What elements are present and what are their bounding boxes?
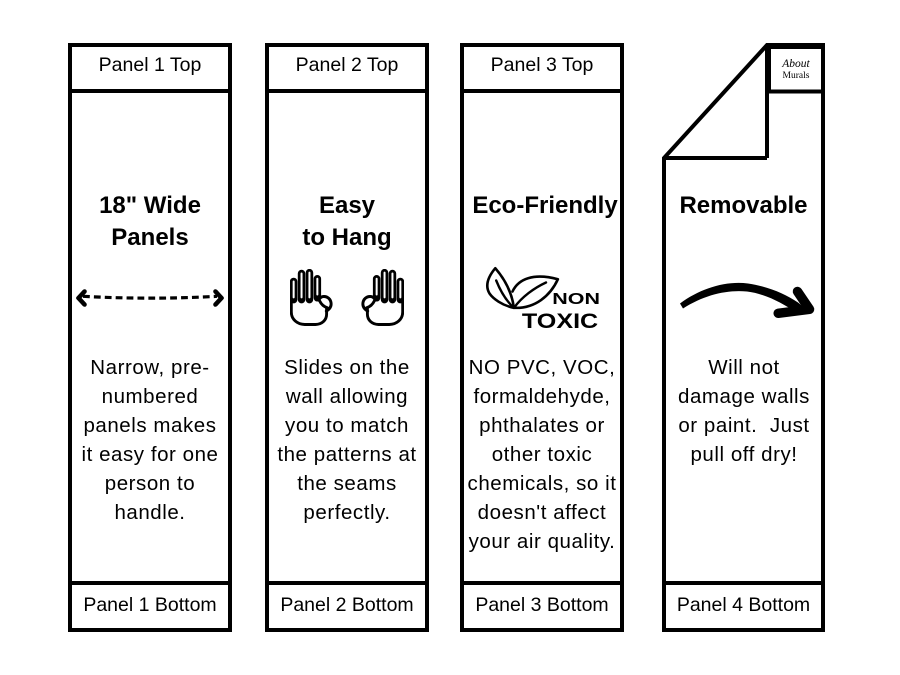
svg-text:TOXIC: TOXIC <box>522 309 598 333</box>
svg-text:NON: NON <box>552 291 600 308</box>
